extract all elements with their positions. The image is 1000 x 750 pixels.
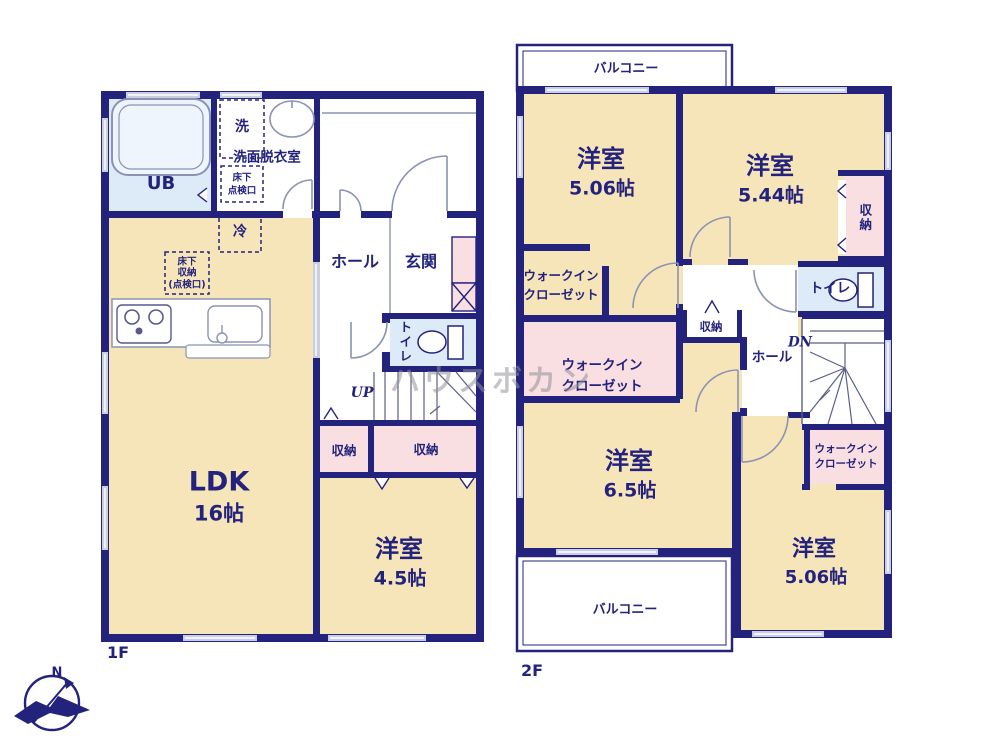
room-ldk-fill (109, 218, 313, 634)
wic1-label-2: クローゼット (523, 289, 598, 302)
room-label-hall-1f: ホール (331, 254, 379, 270)
floor1-label: 1F (107, 645, 129, 661)
floorplan-page: UB 洗 洗面脱衣室 床下 点検口 冷 床下 収納 (点検口) ホール 玄関 ト… (0, 0, 1000, 750)
room-size-65: 6.5帖 (604, 482, 657, 501)
shoe-cabinet (452, 237, 476, 311)
stairs-dn-label: DN (788, 336, 812, 350)
room-label-genkan: 玄関 (405, 254, 437, 270)
room-size-ne: 5.44帖 (738, 187, 804, 206)
compass-north-label: N (52, 667, 63, 680)
room-size-nw: 5.06帖 (569, 180, 635, 199)
floor-storage-label-2: 収納 (177, 268, 196, 278)
washer-label: 洗 (235, 120, 249, 134)
balcony-bottom-label: バルコニー (593, 604, 658, 617)
closet-ne-label: 収納 (858, 204, 871, 233)
room-label-65: 洋室 (605, 449, 653, 473)
room-label-se: 洋室 (792, 539, 836, 561)
room-size-se: 5.06帖 (785, 569, 847, 587)
room-label-nw: 洋室 (577, 147, 625, 171)
floor-hatch-label-2: 点検口 (228, 186, 257, 196)
room-label-ldk: LDK (189, 469, 250, 496)
storage-a-label: 収納 (331, 445, 356, 458)
compass-icon (14, 676, 90, 730)
watermark: ハウスボカン (390, 356, 594, 400)
bathtub-icon (112, 99, 210, 175)
floor2-label: 2F (521, 663, 543, 679)
room-size-yoshitsu45: 4.5帖 (374, 570, 427, 589)
room-label-toilet-2f: トイレ (810, 282, 851, 296)
floor-storage-label-3: (点検口) (168, 280, 205, 290)
washbasin-icon (270, 101, 314, 137)
room-label-washroom: 洗面脱衣室 (233, 151, 301, 165)
wic3-label-2: クローゼット (815, 459, 878, 470)
entry-door-arc (392, 156, 447, 211)
wic1-label-1: ウォークイン (523, 270, 598, 283)
stairs2-fill (802, 319, 884, 424)
room-label-hall-2f: ホール (752, 351, 793, 365)
floor-hatch-label-1: 床下 (232, 173, 251, 183)
kitchen-sink-icon (208, 306, 262, 343)
storage-center-label: 収納 (700, 321, 723, 333)
room-label-yoshitsu45: 洋室 (375, 537, 423, 561)
wic3-label-1: ウォークイン (815, 444, 878, 455)
floor-storage-label-1: 床下 (177, 257, 196, 267)
balcony-top-label: バルコニー (594, 63, 659, 76)
room-label-ub: UB (147, 175, 175, 193)
stove-icon (117, 305, 171, 343)
refrigerator-label: 冷 (233, 225, 247, 239)
stairs-up-label: UP (351, 386, 374, 400)
storage-b-label: 収納 (413, 444, 438, 457)
room-label-ne: 洋室 (746, 154, 794, 178)
room-size-ldk: 16帖 (194, 504, 244, 525)
